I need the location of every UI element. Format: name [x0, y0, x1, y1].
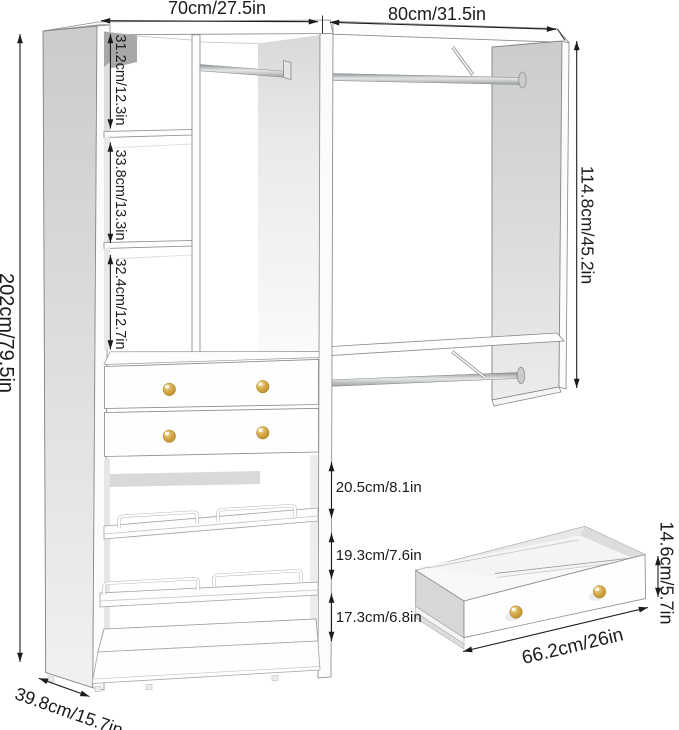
svg-text:14.6cm/5.7in: 14.6cm/5.7in — [657, 521, 677, 624]
svg-text:20.5cm/8.1in: 20.5cm/8.1in — [336, 479, 422, 496]
svg-text:17.3cm/6.8in: 17.3cm/6.8in — [336, 609, 422, 626]
svg-text:80cm/31.5in: 80cm/31.5in — [388, 4, 486, 24]
svg-text:31.2cm/12.3in: 31.2cm/12.3in — [112, 34, 128, 125]
svg-text:70cm/27.5in: 70cm/27.5in — [168, 0, 266, 18]
svg-text:202cm/79.5in: 202cm/79.5in — [0, 273, 17, 393]
svg-text:32.4cm/12.7in: 32.4cm/12.7in — [112, 258, 128, 349]
svg-text:33.8cm/13.3in: 33.8cm/13.3in — [112, 149, 128, 240]
svg-text:114.8cm/45.2in: 114.8cm/45.2in — [578, 166, 598, 284]
svg-text:19.3cm/7.6in: 19.3cm/7.6in — [336, 547, 422, 564]
